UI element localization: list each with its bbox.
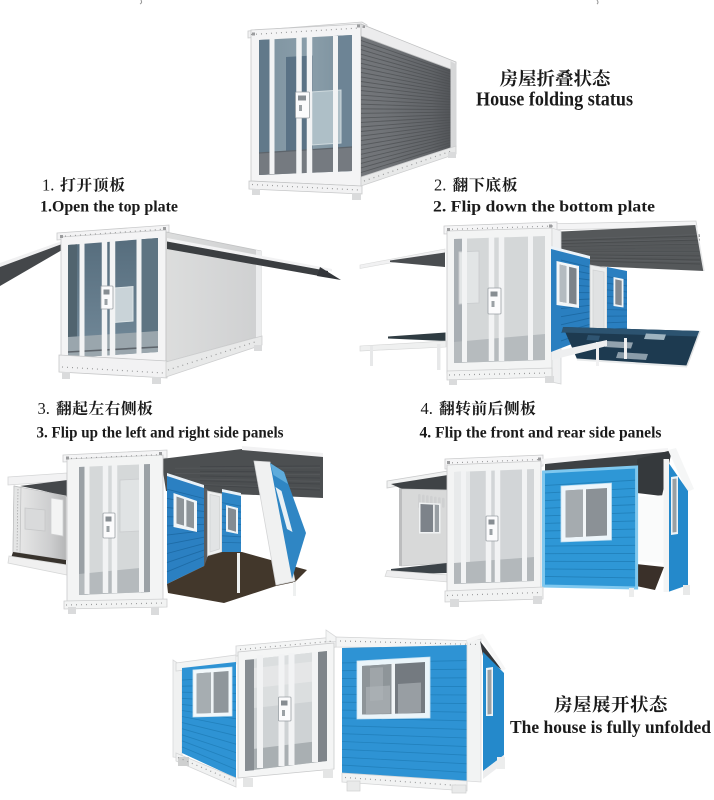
svg-text:2. Flip down the bottom plate: 2. Flip down the bottom plate <box>433 199 655 216</box>
svg-text:3.: 3. <box>38 399 50 418</box>
svg-text:The house is fully unfolded: The house is fully unfolded <box>510 717 711 737</box>
svg-text:1.: 1. <box>42 176 54 195</box>
svg-text:4.: 4. <box>421 399 433 418</box>
svg-text:1.Open the top plate: 1.Open the top plate <box>40 199 178 216</box>
svg-text:3. Flip up the left and right: 3. Flip up the left and right side panel… <box>37 425 284 442</box>
svg-text:2.: 2. <box>434 176 446 195</box>
svg-text:House folding status: House folding status <box>476 90 633 111</box>
svg-text:4. Flip the front and rear sid: 4. Flip the front and rear side panels <box>420 425 662 442</box>
